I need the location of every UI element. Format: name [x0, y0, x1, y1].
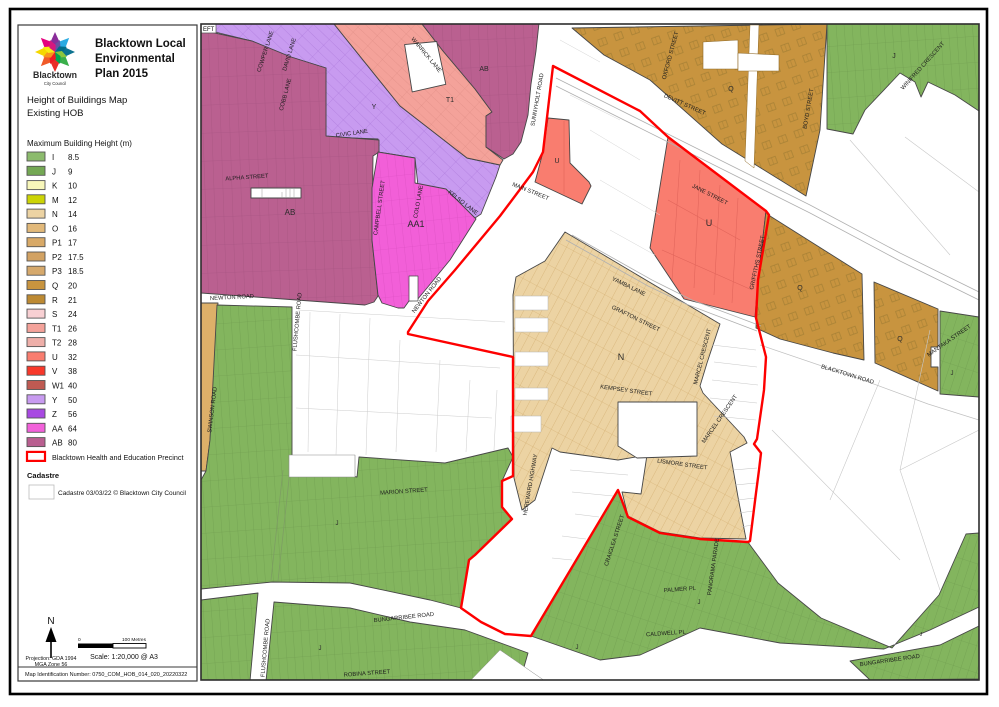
svg-text:18.5: 18.5 [68, 267, 84, 276]
svg-text:56: 56 [68, 410, 77, 419]
svg-text:40: 40 [68, 382, 77, 391]
svg-text:Plan 2015: Plan 2015 [95, 68, 149, 80]
svg-text:U: U [554, 158, 559, 165]
svg-text:AB: AB [285, 208, 296, 217]
svg-text:Y: Y [372, 104, 377, 111]
svg-text:Blacktown Health and Education: Blacktown Health and Education Precinct [52, 453, 183, 462]
svg-text:100 Metres: 100 Metres [122, 637, 147, 643]
svg-text:12: 12 [68, 196, 77, 205]
svg-text:T1: T1 [52, 324, 62, 333]
svg-text:City Council: City Council [44, 81, 66, 86]
svg-text:21: 21 [68, 296, 77, 305]
svg-text:AA1: AA1 [407, 219, 424, 229]
svg-text:J: J [336, 521, 339, 527]
svg-text:P2: P2 [52, 253, 62, 262]
svg-text:9: 9 [68, 167, 73, 176]
svg-text:Blacktown: Blacktown [33, 70, 77, 80]
svg-text:O: O [52, 224, 58, 233]
svg-text:8.5: 8.5 [68, 153, 80, 162]
svg-text:K: K [52, 182, 58, 191]
svg-text:P3: P3 [52, 267, 62, 276]
svg-text:Cadastre 03/03/22 © Blacktown: Cadastre 03/03/22 © Blacktown City Counc… [58, 489, 187, 497]
svg-text:M: M [52, 196, 59, 205]
svg-text:J: J [951, 371, 954, 377]
svg-text:J: J [576, 645, 579, 651]
svg-text:38: 38 [68, 367, 77, 376]
svg-text:50: 50 [68, 396, 77, 405]
svg-text:J: J [52, 167, 56, 176]
svg-text:26: 26 [68, 324, 77, 333]
svg-text:Q: Q [728, 86, 734, 93]
svg-text:V: V [52, 367, 58, 376]
svg-text:AA: AA [52, 424, 63, 433]
svg-text:U: U [706, 218, 713, 228]
svg-text:Environmental: Environmental [95, 53, 175, 65]
svg-text:J: J [892, 53, 896, 60]
svg-text:Scale: 1:20,000 @ A3: Scale: 1:20,000 @ A3 [90, 654, 158, 661]
svg-text:EFT: EFT [203, 27, 215, 33]
svg-text:J: J [319, 646, 322, 652]
svg-text:W1: W1 [52, 382, 65, 391]
svg-text:10: 10 [68, 182, 77, 191]
svg-text:Q: Q [797, 285, 803, 292]
svg-text:U: U [52, 353, 58, 362]
svg-text:J: J [698, 600, 701, 606]
svg-text:17.5: 17.5 [68, 253, 84, 262]
svg-text:N: N [52, 210, 58, 219]
svg-text:N: N [47, 616, 54, 627]
svg-text:17: 17 [68, 239, 77, 248]
svg-text:Z: Z [52, 410, 57, 419]
svg-text:24: 24 [68, 310, 77, 319]
svg-text:80: 80 [68, 439, 77, 448]
svg-text:AB: AB [52, 439, 63, 448]
svg-text:28: 28 [68, 339, 77, 348]
svg-text:Cadastre: Cadastre [27, 471, 59, 480]
svg-text:16: 16 [68, 224, 77, 233]
svg-text:64: 64 [68, 424, 77, 433]
svg-text:S: S [52, 310, 57, 319]
svg-text:Map Identification Number: 075: Map Identification Number: 0750_COM_HOB_… [25, 672, 187, 678]
svg-text:Blacktown Local: Blacktown Local [95, 38, 186, 50]
svg-text:Height of Buildings Map: Height of Buildings Map [27, 95, 127, 106]
svg-text:Existing HOB: Existing HOB [27, 108, 84, 119]
svg-text:Maximum Building Height (m): Maximum Building Height (m) [27, 139, 132, 148]
svg-text:14: 14 [68, 210, 77, 219]
svg-text:R: R [52, 296, 58, 305]
svg-text:T1: T1 [446, 97, 454, 104]
svg-text:N: N [618, 352, 625, 362]
svg-text:Y: Y [52, 396, 58, 405]
svg-text:AB: AB [479, 66, 489, 73]
svg-text:0: 0 [78, 637, 81, 643]
svg-text:Q: Q [897, 336, 903, 343]
svg-text:32: 32 [68, 353, 77, 362]
svg-text:Q: Q [52, 282, 58, 291]
svg-text:I: I [52, 153, 54, 162]
svg-text:P1: P1 [52, 239, 62, 248]
svg-text:20: 20 [68, 282, 77, 291]
svg-text:T2: T2 [52, 339, 62, 348]
